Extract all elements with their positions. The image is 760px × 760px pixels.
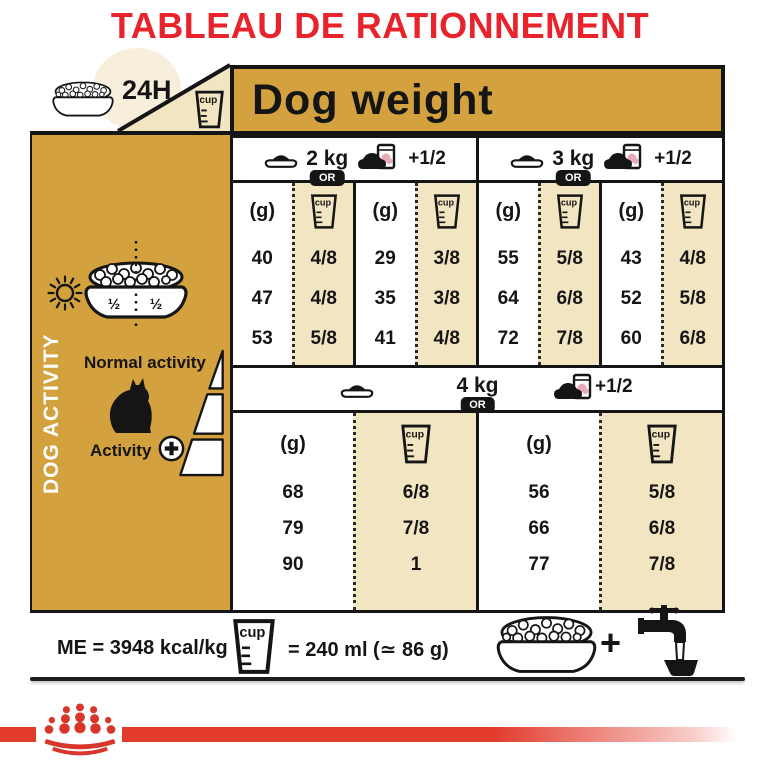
cup-icon <box>230 617 278 676</box>
column-pair-3kg-pouch: (g) 43 52 60 4/8 5/8 6/8 <box>599 183 722 365</box>
grams-value: 64 <box>479 279 538 319</box>
grams-value: 90 <box>233 547 353 583</box>
ration-grid-section2: (g) 68 79 90 6/8 7/8 1 (g) 56 <box>233 413 722 610</box>
moon-icon <box>190 275 214 306</box>
cup-value: 7/8 <box>602 547 722 583</box>
plus-half-label: +1/2 <box>654 148 692 170</box>
cup-value: 4/8 <box>664 239 723 279</box>
cup-value: 3/8 <box>418 239 477 279</box>
cup-value: 4/8 <box>418 319 477 359</box>
grams-column: (g) 68 79 90 <box>233 413 353 610</box>
split-meal-bowl-icon: ½ ½ <box>80 241 192 333</box>
grams-value: 41 <box>356 319 415 359</box>
cup-value: 3/8 <box>418 279 477 319</box>
cup-icon <box>432 193 462 230</box>
water-faucet-icon <box>630 604 702 678</box>
cup-value: 5/8 <box>541 239 600 279</box>
ration-data-table: 2 kg OR +1/2 3 kg OR +1/2 (g) <box>230 135 725 613</box>
cup-value: 5/8 <box>664 279 723 319</box>
cup-header <box>664 183 723 239</box>
sun-icon <box>45 273 85 313</box>
cup-header <box>295 183 354 239</box>
grams-value: 79 <box>233 511 353 547</box>
half-portion-right: ½ <box>150 296 163 313</box>
or-badge: OR <box>460 397 495 413</box>
plus-circle-icon <box>157 434 186 463</box>
column-pair-2kg-bowl: (g) 40 47 53 4/8 4/8 5/8 <box>233 183 353 365</box>
grams-column: (g) 55 64 72 <box>479 183 538 365</box>
bowl-icon <box>263 150 299 169</box>
cup-icon <box>645 423 679 465</box>
cup-value: 6/8 <box>602 511 722 547</box>
column-pair-4kg-pouch: (g) 56 66 77 5/8 6/8 7/8 <box>476 413 722 610</box>
cup-icon <box>309 193 339 230</box>
grams-value: 77 <box>479 547 599 583</box>
plus-half-label: +1/2 <box>595 376 633 398</box>
cup-value: 4/8 <box>295 279 354 319</box>
cups-column: 4/8 5/8 6/8 <box>661 183 723 365</box>
grams-column: (g) 29 35 41 <box>356 183 415 365</box>
weight-header-row-2: 4 kg OR +1/2 <box>233 368 722 413</box>
cup-icon <box>678 193 708 230</box>
bowl-pouch-icon <box>601 143 647 175</box>
ration-table: 24H Dog weight <box>30 63 725 613</box>
cups-column: 6/8 7/8 1 <box>353 413 476 610</box>
page-title: TABLEAU DE RATIONNEMENT <box>0 5 760 47</box>
grams-value: 43 <box>602 239 661 279</box>
ration-grid-section1: (g) 40 47 53 4/8 4/8 5/8 (g) <box>233 183 722 368</box>
or-badge: OR <box>556 170 591 186</box>
grams-header: (g) <box>479 183 538 239</box>
bowl-icon <box>339 380 375 399</box>
grams-header: (g) <box>233 183 292 239</box>
plus-sign: + <box>600 622 621 664</box>
grams-header: (g) <box>479 413 599 475</box>
cup-value: 6/8 <box>356 475 476 511</box>
dog-weight-label: Dog weight <box>234 76 494 125</box>
dog-activity-vertical-label: DOG ACTIVITY <box>40 328 76 500</box>
cup-header <box>602 413 722 475</box>
cup-value: 5/8 <box>295 319 354 359</box>
cup-value: 1 <box>356 547 476 583</box>
bowl-pouch-icon <box>355 143 401 175</box>
column-pair-3kg-bowl: (g) 55 64 72 5/8 6/8 7/8 <box>476 183 599 365</box>
grams-value: 29 <box>356 239 415 279</box>
weight-label: 3 kg <box>552 147 594 170</box>
grams-header: (g) <box>233 413 353 475</box>
feeding-table-page: TABLEAU DE RATIONNEMENT 24H Dog weight <box>0 0 760 760</box>
cup-value: 6/8 <box>664 319 723 359</box>
grams-value: 35 <box>356 279 415 319</box>
grams-value: 40 <box>233 239 292 279</box>
kibble-bowl-icon <box>493 612 600 677</box>
brand-band-left <box>0 727 36 742</box>
cup-value: 7/8 <box>541 319 600 359</box>
dog-silhouette-icon <box>103 375 165 435</box>
half-portion-left: ½ <box>108 296 121 313</box>
cups-column: 3/8 3/8 4/8 <box>415 183 477 365</box>
grams-column: (g) 40 47 53 <box>233 183 292 365</box>
cup-icon <box>193 89 226 130</box>
cup-value: 5/8 <box>602 475 722 511</box>
header-corner: 24H <box>30 63 230 135</box>
column-pair-4kg-bowl: (g) 68 79 90 6/8 7/8 1 <box>233 413 476 610</box>
grams-value: 72 <box>479 319 538 359</box>
per-day-label: 24H <box>122 75 172 106</box>
grams-value: 47 <box>233 279 292 319</box>
divider-rule <box>30 677 745 681</box>
cup-value: 4/8 <box>295 239 354 279</box>
grams-value: 56 <box>479 475 599 511</box>
grams-value: 68 <box>233 475 353 511</box>
cup-equivalence-label: = 240 ml (≃ 86 g) <box>288 637 449 662</box>
cups-column: 4/8 4/8 5/8 <box>292 183 354 365</box>
plus-half-label: +1/2 <box>408 148 446 170</box>
cups-column: 5/8 6/8 7/8 <box>599 413 722 610</box>
grams-value: 52 <box>602 279 661 319</box>
grams-value: 60 <box>602 319 661 359</box>
brand-band-right <box>122 727 737 742</box>
cup-value: 6/8 <box>541 279 600 319</box>
bowl-icon <box>509 150 545 169</box>
cup-value: 7/8 <box>356 511 476 547</box>
cup-header <box>541 183 600 239</box>
bowl-pouch-icon <box>551 373 597 405</box>
grams-column: (g) 56 66 77 <box>479 413 599 610</box>
metabolic-energy-label: ME = 3948 kcal/kg <box>57 637 228 660</box>
weight-group-3kg: 3 kg OR +1/2 <box>476 138 722 180</box>
weight-header-row-1: 2 kg OR +1/2 3 kg OR +1/2 <box>233 138 722 183</box>
column-pair-2kg-pouch: (g) 29 35 41 3/8 3/8 4/8 <box>353 183 476 365</box>
weight-group-2kg: 2 kg OR +1/2 <box>233 138 476 180</box>
kibble-bowl-icon <box>50 79 116 119</box>
grams-header: (g) <box>356 183 415 239</box>
cup-icon <box>555 193 585 230</box>
activity-label: Activity <box>90 441 151 461</box>
dog-weight-header: Dog weight <box>230 65 725 135</box>
grams-header: (g) <box>602 183 661 239</box>
cup-icon <box>399 423 433 465</box>
royal-canin-crown-logo <box>36 698 124 760</box>
grams-column: (g) 43 52 60 <box>602 183 661 365</box>
cups-column: 5/8 6/8 7/8 <box>538 183 600 365</box>
grams-value: 66 <box>479 511 599 547</box>
cup-header <box>356 413 476 475</box>
or-badge: OR <box>310 170 345 186</box>
cup-header <box>418 183 477 239</box>
weight-label: 2 kg <box>306 147 348 170</box>
dog-activity-sidebar: ½ ½ DOG ACTIVITY Normal activity Activit… <box>30 135 230 613</box>
grams-value: 55 <box>479 239 538 279</box>
grams-value: 53 <box>233 319 292 359</box>
weight-label: 4 kg <box>456 374 498 397</box>
